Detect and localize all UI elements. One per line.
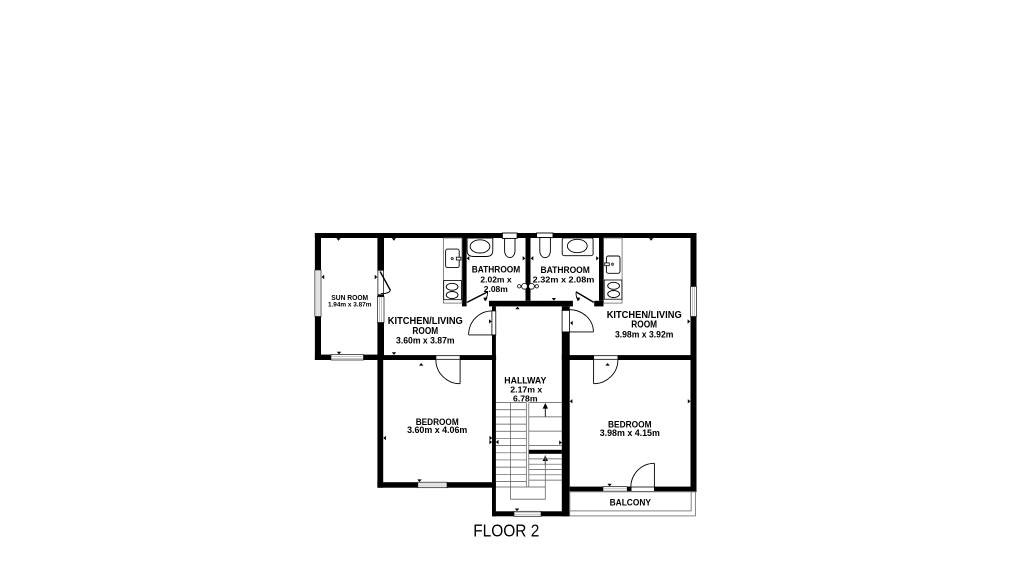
- svg-text:3.60m x 3.87m: 3.60m x 3.87m: [396, 335, 455, 345]
- svg-text:3.60m x 4.06m: 3.60m x 4.06m: [407, 425, 467, 435]
- svg-text:BATHROOM: BATHROOM: [541, 265, 590, 275]
- svg-text:FLOOR 2: FLOOR 2: [473, 520, 539, 540]
- svg-text:6.78m: 6.78m: [513, 393, 538, 403]
- svg-text:2.32m x 2.08m: 2.32m x 2.08m: [533, 275, 595, 285]
- svg-text:3.98m x 4.15m: 3.98m x 4.15m: [600, 428, 660, 438]
- svg-text:2.08m: 2.08m: [484, 284, 508, 294]
- svg-text:3.98m x 3.92m: 3.98m x 3.92m: [615, 329, 674, 339]
- svg-text:1.94m x 3.87m: 1.94m x 3.87m: [328, 302, 372, 309]
- svg-text:BATHROOM: BATHROOM: [472, 265, 521, 275]
- svg-text:BALCONY: BALCONY: [610, 497, 651, 507]
